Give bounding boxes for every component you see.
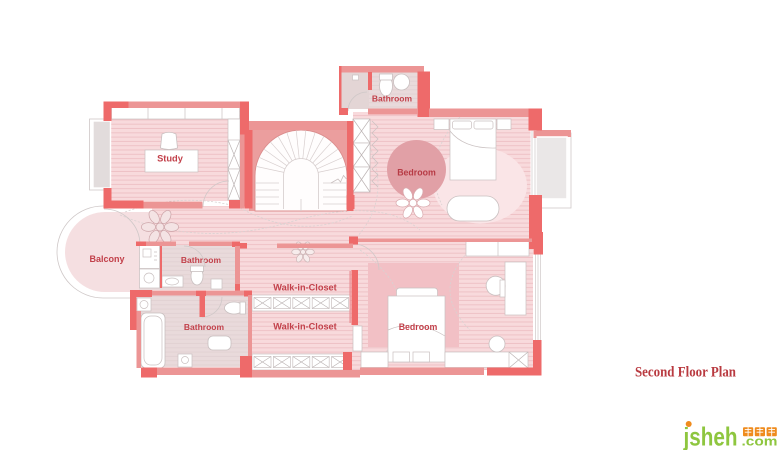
svg-text:.com: .com	[742, 434, 778, 449]
svg-text:Bathroom: Bathroom	[372, 94, 413, 104]
svg-text:Walk-in-Closet: Walk-in-Closet	[273, 283, 336, 293]
svg-text:Study: Study	[157, 154, 184, 164]
svg-text:Second Floor Plan: Second Floor Plan	[635, 365, 736, 381]
svg-text:Bathroom: Bathroom	[181, 255, 222, 265]
svg-text:Bedroom: Bedroom	[399, 322, 438, 332]
svg-text:Balcony: Balcony	[89, 254, 124, 264]
svg-text:Walk-in-Closet: Walk-in-Closet	[273, 322, 336, 332]
svg-text:Bedroom: Bedroom	[397, 168, 436, 178]
svg-text:Bathroom: Bathroom	[184, 322, 225, 332]
